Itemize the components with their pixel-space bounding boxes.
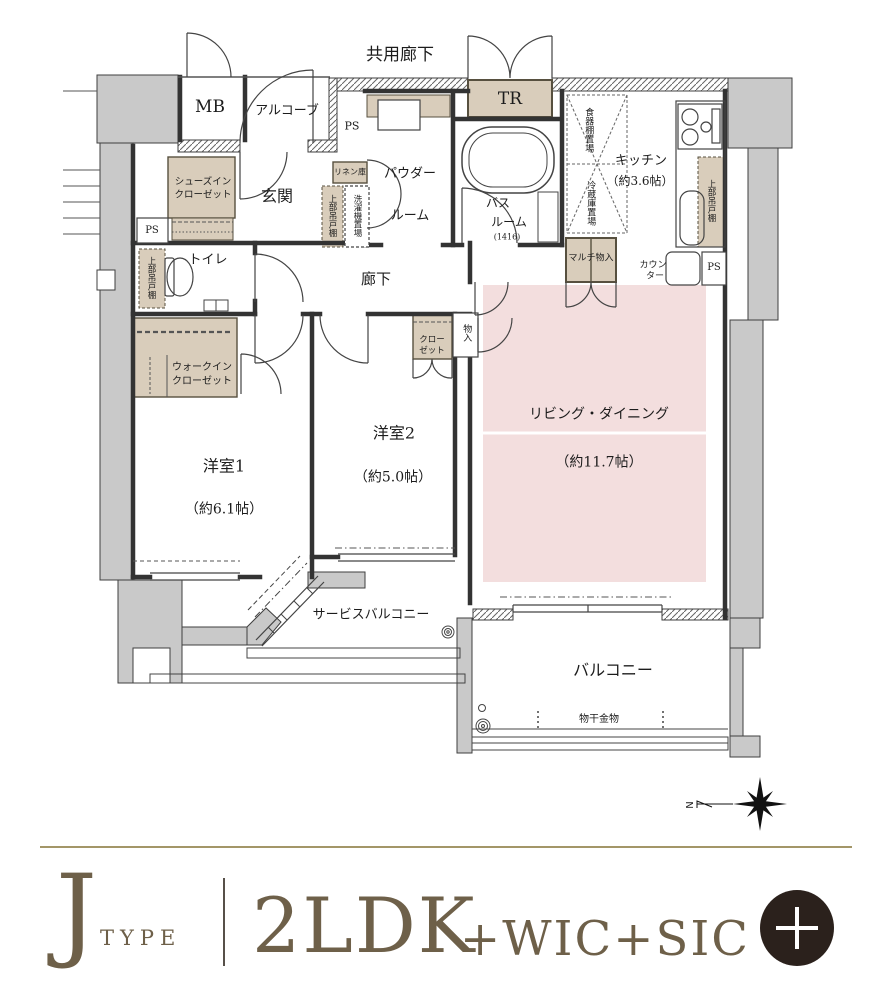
layout-name: 2LDK <box>252 888 477 964</box>
label-living-dining: リビング・ダイニング <box>529 407 669 424</box>
floorplan: 共用廊下 MB アルコーブ PS TR 玄関 シューズイン クローゼット PS … <box>0 0 890 840</box>
plus-icon <box>795 907 799 949</box>
label-fridge: 冷蔵庫置場 <box>585 181 596 226</box>
floorplan-drawing <box>0 0 890 840</box>
balcony-details <box>472 705 728 751</box>
label-balcony: バルコニー <box>573 662 653 681</box>
label-hallway: 廊下 <box>361 271 391 289</box>
label-multi-storage: マルチ物入 <box>568 254 613 265</box>
label-ps-2: PS <box>345 121 360 134</box>
compass-icon <box>697 777 787 831</box>
label-wic-2: クローゼット <box>172 376 232 388</box>
label-upper-cabinet-kitchen: 上部吊戸棚 <box>706 180 716 223</box>
label-bath-2: ルーム <box>491 215 527 229</box>
label-common-corridor: 共用廊下 <box>366 45 434 65</box>
living-dining-floor <box>483 285 706 582</box>
type-letter: J <box>56 862 97 964</box>
label-closet-2: ゼット <box>419 346 445 356</box>
label-ps-1: PS <box>145 225 159 237</box>
label-living-dining-size: （約11.7帖） <box>555 455 642 472</box>
label-powder-1: パウダー <box>384 166 436 181</box>
type-word: TYPE <box>100 926 181 950</box>
label-kitchen-size: （約3.6帖） <box>606 174 673 188</box>
label-upper-cabinet-laundry: 上部吊戸棚 <box>327 195 337 238</box>
label-toilet: トイレ <box>188 252 227 267</box>
floorplan-page: 共用廊下 MB アルコーブ PS TR 玄関 シューズイン クローゼット PS … <box>0 0 890 1008</box>
label-upper-cabinet-toilet: 上部吊戸棚 <box>146 257 156 300</box>
label-service-balcony: サービスバルコニー <box>313 607 430 622</box>
logo-separator <box>223 878 225 966</box>
label-genkan: 玄関 <box>261 188 293 207</box>
label-powder-2: ルーム <box>391 208 430 223</box>
label-bath-size: (1416) <box>494 232 521 241</box>
label-closet-1: クロー <box>419 335 445 345</box>
label-linen: リネン庫 <box>334 167 366 176</box>
label-kitchen: キッチン <box>615 153 667 168</box>
label-mb: MB <box>195 97 225 117</box>
adjacent-unit-ticks <box>63 91 100 234</box>
label-alcove: アルコーブ <box>255 103 319 118</box>
label-tr: TR <box>498 89 522 109</box>
label-storage: 物入 <box>461 324 472 342</box>
label-wic-1: ウォークイン <box>172 362 232 374</box>
label-laundry-hardware: 物干金物 <box>579 714 619 726</box>
label-room2-size: （約5.0帖） <box>354 470 432 487</box>
label-washer: 洗濯機置場 <box>352 195 362 238</box>
label-ps-3: PS <box>707 262 721 274</box>
label-room2: 洋室2 <box>373 425 415 444</box>
label-shoes-closet-2: クローゼット <box>174 189 231 200</box>
label-room1: 洋室1 <box>203 458 245 477</box>
label-north: N <box>685 801 697 808</box>
expand-button[interactable] <box>760 890 834 966</box>
label-shoes-closet-1: シューズイン <box>175 176 232 187</box>
label-counter-1: カウン <box>639 261 666 272</box>
layout-suffix: +WIC+SIC <box>460 915 750 963</box>
footer-divider-rule <box>40 846 852 848</box>
label-bath-1: バス <box>486 196 510 210</box>
label-dish-shelf: 食器棚置場 <box>583 108 594 153</box>
label-room1-size: （約6.1帖） <box>185 502 263 519</box>
label-counter-2: ター <box>646 272 664 283</box>
